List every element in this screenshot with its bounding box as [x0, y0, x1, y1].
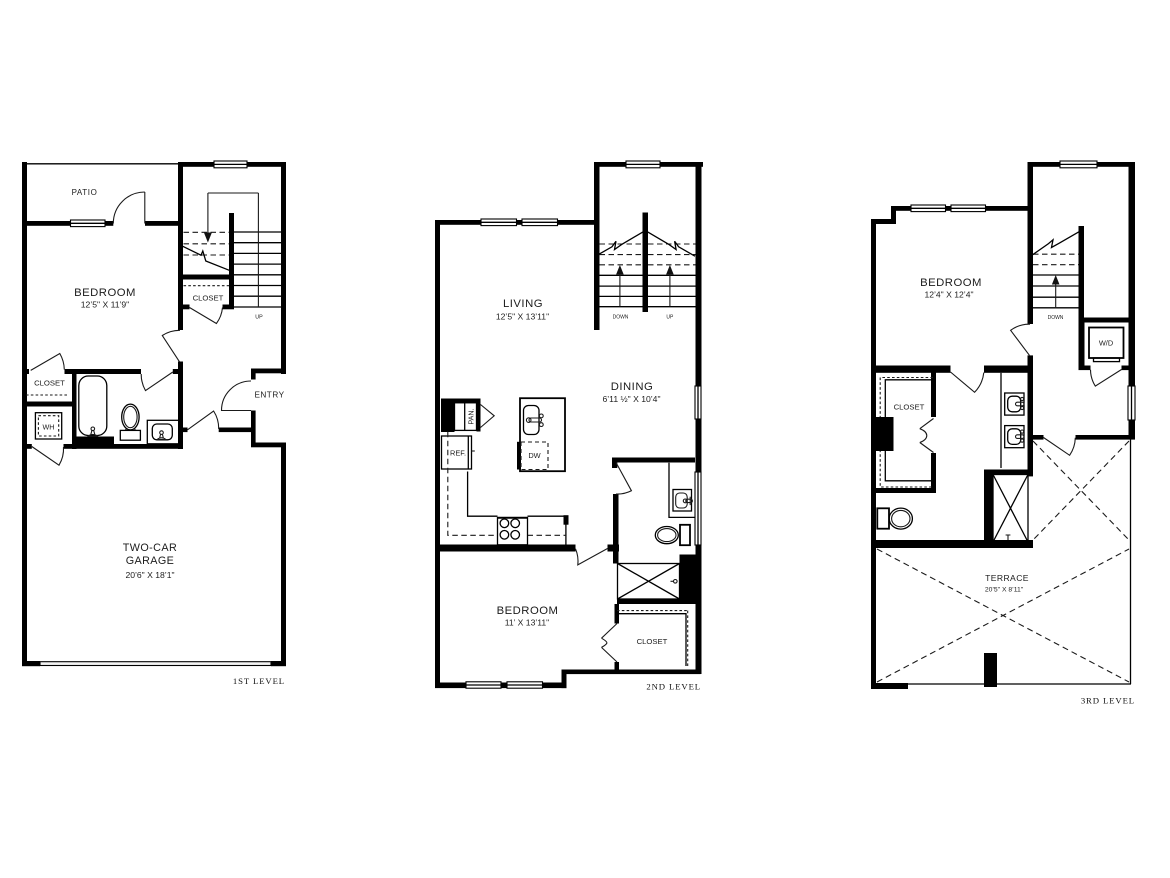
svg-text:UP: UP: [666, 314, 674, 320]
svg-text:WH: WH: [43, 423, 55, 432]
svg-text:CLOSET: CLOSET: [894, 403, 925, 412]
svg-text:REF.: REF.: [450, 449, 466, 458]
svg-text:TWO-CAR: TWO-CAR: [123, 542, 177, 554]
svg-text:UP: UP: [255, 315, 263, 321]
svg-text:1ST LEVEL: 1ST LEVEL: [233, 676, 285, 686]
svg-text:TERRACE: TERRACE: [985, 573, 1029, 583]
svg-text:12’5" X 13’11": 12’5" X 13’11": [496, 312, 549, 322]
svg-text:DOWN: DOWN: [613, 314, 629, 320]
svg-text:12’4" X 12’4": 12’4" X 12’4": [924, 290, 973, 300]
svg-text:DOWN: DOWN: [1048, 315, 1064, 321]
svg-text:BEDROOM: BEDROOM: [497, 605, 559, 617]
svg-text:ENTRY: ENTRY: [254, 391, 284, 400]
svg-text:DW: DW: [528, 451, 540, 460]
svg-text:6’11 ½" X 10’4": 6’11 ½" X 10’4": [602, 394, 660, 404]
svg-text:3RD LEVEL: 3RD LEVEL: [1081, 696, 1135, 706]
svg-text:CLOSET: CLOSET: [637, 637, 668, 646]
svg-text:12’5" X 11’9": 12’5" X 11’9": [81, 300, 129, 310]
svg-text:GARAGE: GARAGE: [126, 555, 175, 567]
svg-text:CLOSET: CLOSET: [193, 293, 224, 302]
svg-text:LIVING: LIVING: [503, 298, 543, 310]
svg-text:PAN.: PAN.: [467, 408, 476, 424]
svg-text:DINING: DINING: [611, 381, 654, 393]
svg-text:BEDROOM: BEDROOM: [920, 277, 982, 289]
svg-text:BEDROOM: BEDROOM: [74, 287, 136, 299]
svg-text:PATIO: PATIO: [72, 188, 98, 197]
svg-text:CLOSET: CLOSET: [34, 379, 65, 388]
svg-text:20’6" X 18’1": 20’6" X 18’1": [125, 570, 174, 580]
svg-text:W/D: W/D: [1099, 339, 1113, 348]
svg-text:20’5" X 8’11": 20’5" X 8’11": [985, 587, 1024, 594]
svg-text:2ND LEVEL: 2ND LEVEL: [646, 682, 701, 692]
svg-text:11’ X 13’11": 11’ X 13’11": [505, 618, 549, 628]
